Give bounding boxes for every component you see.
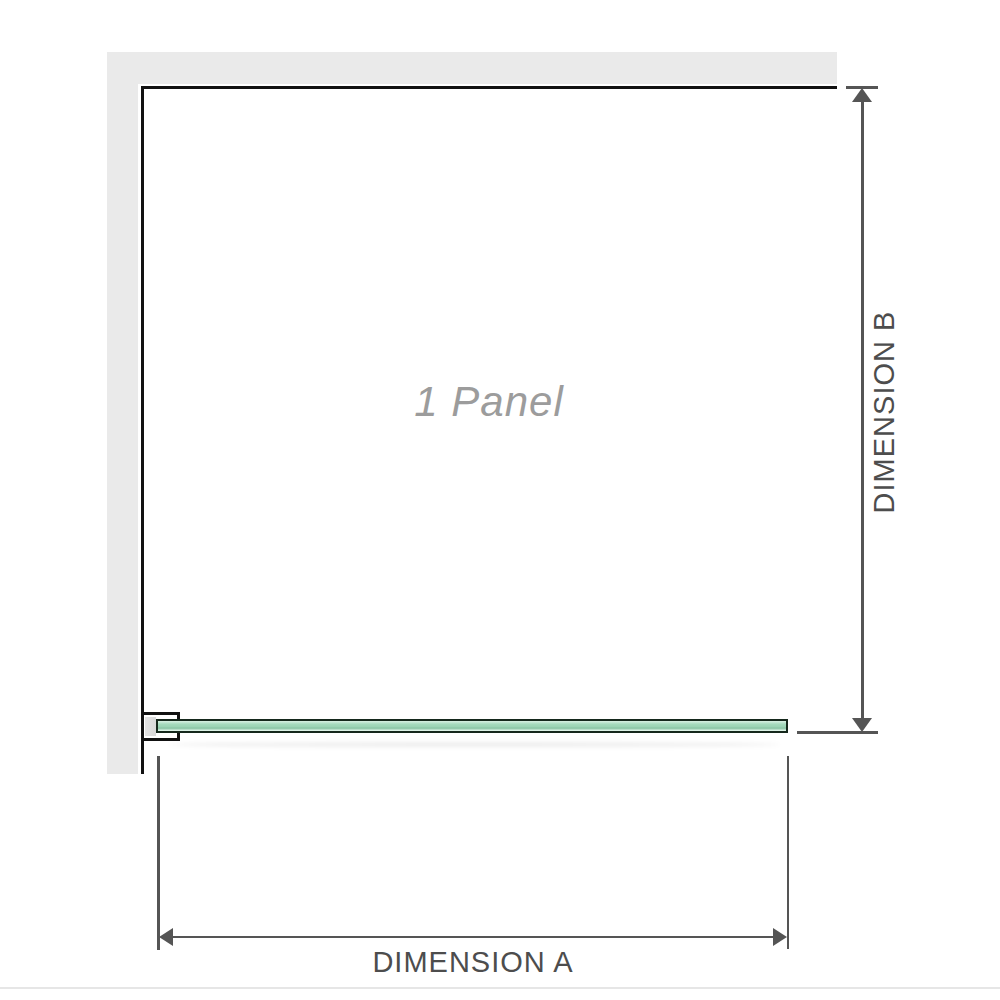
dimension-b-label: DIMENSION B xyxy=(868,262,900,562)
arrowhead-right-icon xyxy=(773,928,787,946)
dimension-a-label: DIMENSION A xyxy=(158,946,788,979)
wall-inner-edge-left xyxy=(141,86,144,774)
wall-top xyxy=(107,52,837,84)
dimension-b-line xyxy=(861,98,864,723)
arrowhead-left-icon xyxy=(159,928,173,946)
wall-inner-edge-top xyxy=(141,86,837,89)
arrowhead-up-icon xyxy=(852,88,872,102)
glass-panel xyxy=(156,719,788,733)
panel-dimension-diagram: 1 Panel DIMENSION B DIMENSION A xyxy=(0,0,1000,1000)
dimension-a-extension-left xyxy=(157,756,160,950)
wall-left xyxy=(107,52,138,774)
dimension-a-extension-right xyxy=(787,756,790,949)
bottom-divider xyxy=(0,987,1000,989)
arrowhead-down-icon xyxy=(852,718,872,732)
panel-count-label: 1 Panel xyxy=(141,379,837,425)
dimension-a-line xyxy=(166,936,780,939)
panel-shadow xyxy=(168,742,780,747)
bracket-pad xyxy=(145,717,156,736)
